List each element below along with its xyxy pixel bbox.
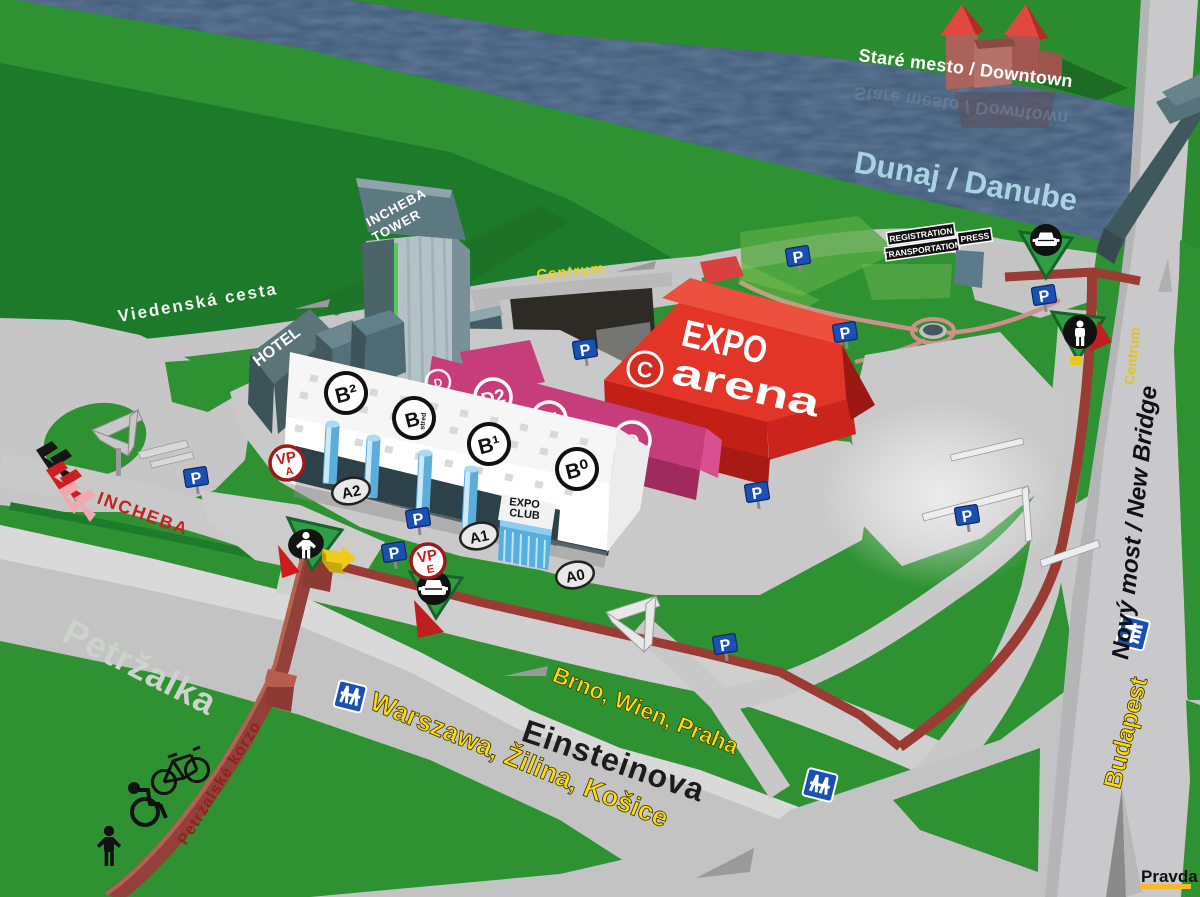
svg-text:Pravda: Pravda (1141, 867, 1198, 886)
